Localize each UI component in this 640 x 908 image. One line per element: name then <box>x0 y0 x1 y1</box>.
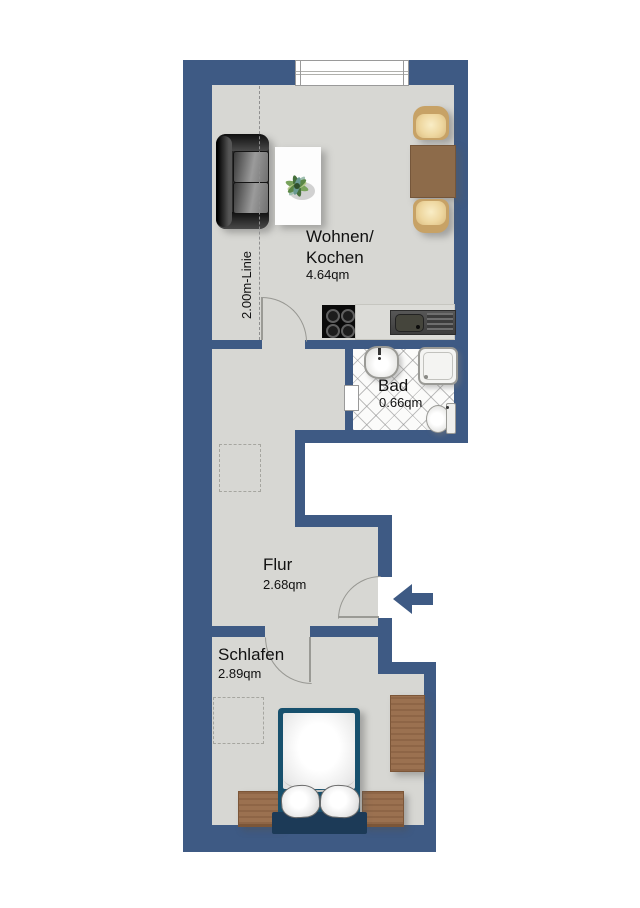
room-area-bad: 0.66qm <box>379 395 422 410</box>
window-frame-tick <box>300 61 301 85</box>
room-label-schlafen: Schlafen <box>218 645 284 665</box>
entrance-arrow-icon <box>392 583 434 615</box>
height-line-2m <box>259 86 260 340</box>
sofa-seat-cushion <box>233 151 269 183</box>
shower <box>418 347 458 385</box>
stove-burner <box>341 324 355 338</box>
wall-step <box>392 662 424 674</box>
room-label-flur: Flur <box>263 555 292 575</box>
floor-plan: Wohnen/ Kochen 4.64qm Bad 0.66qm Flur 2.… <box>0 0 640 908</box>
chair-cushion <box>416 201 446 225</box>
room-area-flur: 2.68qm <box>263 577 306 592</box>
nightstand <box>362 791 404 827</box>
kitchen-sink <box>390 310 456 335</box>
bed-pillow <box>280 784 321 819</box>
sofa-backrest <box>216 136 232 227</box>
washbasin-drain <box>378 357 381 360</box>
wall-flur-schlafen-left <box>212 626 265 637</box>
room-label-wohnen-line2: Kochen <box>306 248 364 268</box>
room-area-schlafen: 2.89qm <box>218 666 261 681</box>
door-leaf-schlafen <box>309 637 311 682</box>
door-leaf-wohnen <box>261 297 263 340</box>
height-line-label: 2.00m-Linie <box>239 239 255 331</box>
dining-chair <box>413 199 449 233</box>
wall-right-upper <box>454 60 468 443</box>
wall-schlafen-right <box>424 662 436 852</box>
sink-drain <box>416 325 420 329</box>
wardrobe-placeholder-schlafen <box>213 697 264 744</box>
window-glass-line <box>296 74 408 75</box>
sofa-seat-cushion <box>233 182 269 214</box>
wall-top-left <box>183 60 295 85</box>
floor-flur-neck <box>212 349 353 430</box>
room-label-wohnen-line1: Wohnen/ <box>306 227 374 247</box>
wall-flur-ext-top <box>295 515 392 527</box>
dining-table <box>410 145 456 198</box>
washbasin-tap <box>378 348 381 355</box>
wall-flur-schlafen-right <box>310 626 380 637</box>
bad-door-opening <box>344 385 359 411</box>
desk <box>390 695 425 772</box>
window-glass-line <box>296 71 408 72</box>
sofa <box>216 134 269 229</box>
wall-mid-stub <box>212 340 262 349</box>
shower-drain <box>424 375 428 379</box>
wall-entrance-above <box>378 527 392 577</box>
door-leaf-entrance <box>338 616 379 618</box>
sink-drainboard <box>427 313 453 331</box>
bed-pillow <box>319 784 361 819</box>
stove-burner <box>341 309 355 323</box>
dining-chair <box>413 106 449 140</box>
room-label-bad: Bad <box>378 376 408 396</box>
stove-burner <box>326 324 340 338</box>
stove-burner <box>326 309 340 323</box>
wall-entrance-below <box>378 618 392 674</box>
washbasin <box>364 346 399 379</box>
window <box>295 60 409 86</box>
sink-basin <box>395 314 424 332</box>
wardrobe-placeholder-flur <box>219 444 261 492</box>
wall-left <box>183 60 212 852</box>
window-frame-tick <box>403 61 404 85</box>
plant-icon <box>275 147 321 225</box>
stove <box>322 305 355 338</box>
coffee-table <box>275 147 321 225</box>
room-area-wohnen: 4.64qm <box>306 267 349 282</box>
toilet-flush-button <box>446 406 449 409</box>
chair-cushion <box>416 114 446 138</box>
